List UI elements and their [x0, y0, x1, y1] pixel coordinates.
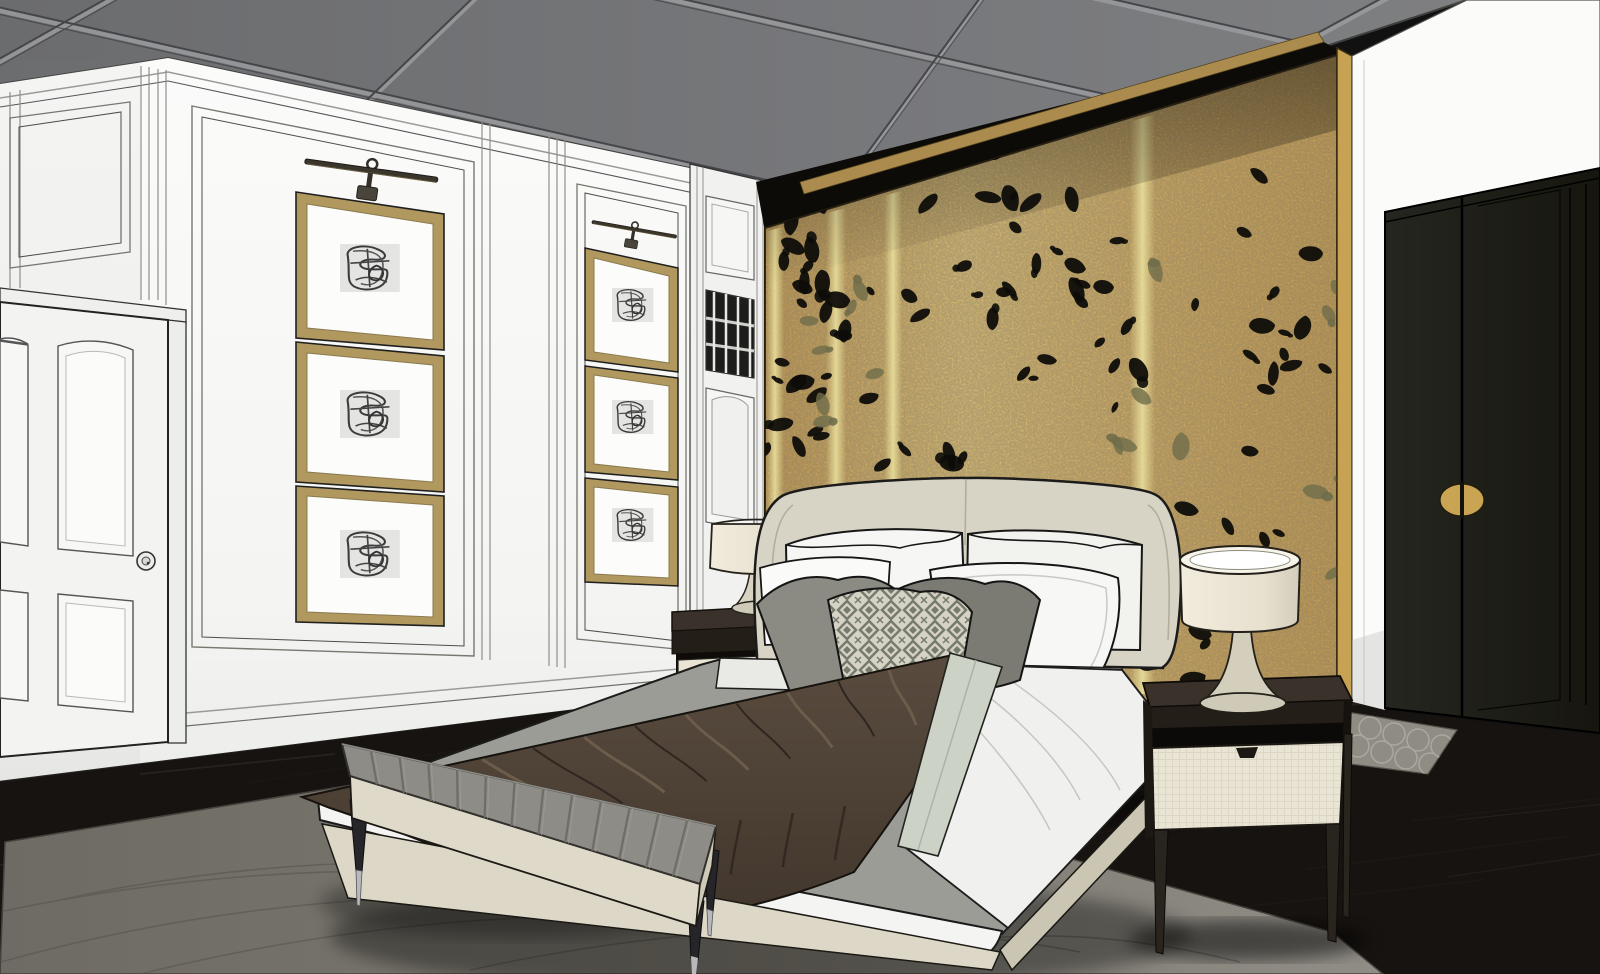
door-side-jamb — [168, 320, 186, 743]
artwork-stack-1 — [296, 150, 444, 626]
art-frame — [585, 366, 678, 480]
door-group — [0, 288, 186, 757]
door-panels — [0, 338, 133, 712]
lamp-foot — [1200, 693, 1286, 713]
art-frame — [296, 486, 444, 626]
builtin-upper-panel — [706, 196, 754, 280]
right-wall-group — [1352, 0, 1600, 762]
art-frame — [585, 248, 678, 372]
door-knob — [137, 552, 155, 570]
bench-stripe — [485, 776, 486, 818]
art-frame — [296, 342, 444, 492]
render-stage: Bedroom interior design — stylized 3D re… — [0, 0, 1600, 974]
art-frame — [296, 192, 444, 350]
bench-stripe — [457, 769, 458, 809]
bench-stripe-highlight — [460, 770, 461, 810]
art-frame — [585, 478, 678, 586]
wardrobe — [1385, 168, 1600, 733]
artwork-stack-2 — [585, 215, 678, 586]
bedroom-render: Bedroom interior design — stylized 3D re… — [0, 0, 1600, 974]
gold-wall-side-strip — [1337, 48, 1352, 760]
